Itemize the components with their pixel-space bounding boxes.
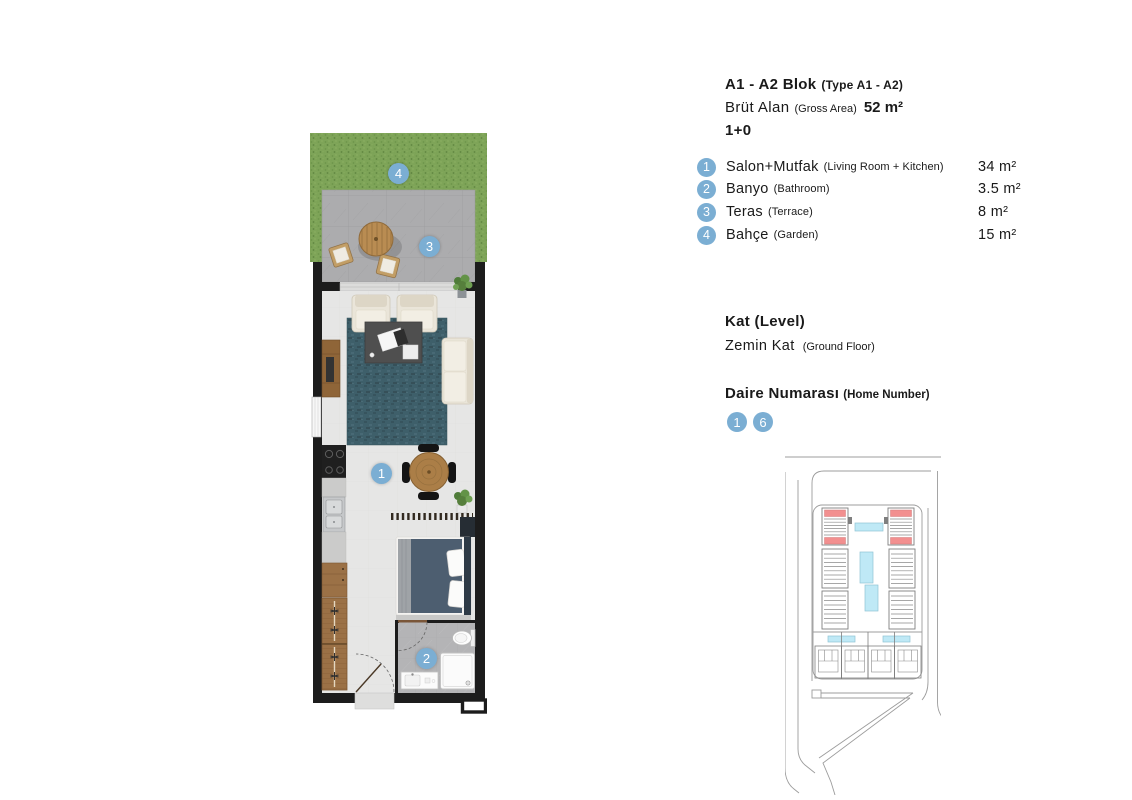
legend-name: Banyo bbox=[726, 181, 769, 197]
legend-row-garden: 4 Bahçe (Garden) 15 m² bbox=[697, 225, 1042, 245]
floor-plan: 4 3 1 2 bbox=[310, 133, 487, 718]
legend-row-living-kitchen: 1 Salon+Mutfak (Living Room + Kitchen) 3… bbox=[697, 157, 1042, 177]
plan-badge-garden: 4 bbox=[388, 163, 409, 184]
plan-badge-terrace: 3 bbox=[419, 236, 440, 257]
legend-area: 8 m² bbox=[978, 204, 1008, 220]
gross-area-label: Brüt Alan bbox=[725, 99, 789, 116]
gross-area-value: 52 m² bbox=[864, 99, 903, 116]
legend-area: 15 m² bbox=[978, 227, 1017, 243]
room-layout: 1+0 bbox=[725, 122, 751, 139]
gross-area-sublabel: (Gross Area) bbox=[794, 103, 856, 115]
plan-badge-bathroom: 2 bbox=[416, 648, 437, 669]
legend-name-en: (Bathroom) bbox=[774, 183, 830, 195]
home-number-label-line: Daire Numarası(Home Number) bbox=[725, 385, 930, 403]
legend-name-en: (Terrace) bbox=[768, 206, 813, 218]
legend-number-badge: 2 bbox=[697, 180, 716, 199]
site-plan-drawing bbox=[785, 450, 941, 795]
page: 4 3 1 2 A1 - A2 Blok(Type A1 - A2) Brüt … bbox=[0, 0, 1132, 800]
legend-name: Bahçe bbox=[726, 227, 769, 243]
home-number-badges: 1 6 bbox=[727, 412, 773, 432]
legend-row-bathroom: 2 Banyo (Bathroom) 3.5 m² bbox=[697, 179, 1042, 199]
home-number-badge-6: 6 bbox=[753, 412, 773, 432]
level-value-en: (Ground Floor) bbox=[803, 341, 875, 353]
home-number-badge-1: 1 bbox=[727, 412, 747, 432]
gross-area-line: Brüt Alan(Gross Area)52 m² bbox=[725, 99, 903, 117]
legend-name: Salon+Mutfak bbox=[726, 159, 819, 175]
legend-area: 3.5 m² bbox=[978, 181, 1021, 197]
block-title: A1 - A2 Blok bbox=[725, 76, 816, 93]
legend-row-terrace: 3 Teras (Terrace) 8 m² bbox=[697, 202, 1042, 222]
level-label: Kat (Level) bbox=[725, 313, 805, 330]
floor-plan-drawing bbox=[310, 133, 487, 718]
legend-area: 34 m² bbox=[978, 159, 1017, 175]
legend-number-badge: 3 bbox=[697, 203, 716, 222]
legend-name-en: (Living Room + Kitchen) bbox=[824, 161, 944, 173]
site-plan bbox=[785, 450, 941, 795]
plan-badge-living-kitchen: 1 bbox=[371, 463, 392, 484]
home-number-label: Daire Numarası bbox=[725, 385, 839, 402]
legend-name-en: (Garden) bbox=[774, 229, 819, 241]
legend-number-badge: 1 bbox=[697, 158, 716, 177]
level-value-line: Zemin Kat(Ground Floor) bbox=[725, 337, 875, 355]
block-subtitle: (Type A1 - A2) bbox=[821, 78, 903, 92]
legend-name: Teras bbox=[726, 204, 763, 220]
legend-number-badge: 4 bbox=[697, 226, 716, 245]
block-title-line: A1 - A2 Blok(Type A1 - A2) bbox=[725, 76, 903, 94]
home-number-label-en: (Home Number) bbox=[843, 389, 929, 401]
level-value: Zemin Kat bbox=[725, 338, 795, 354]
